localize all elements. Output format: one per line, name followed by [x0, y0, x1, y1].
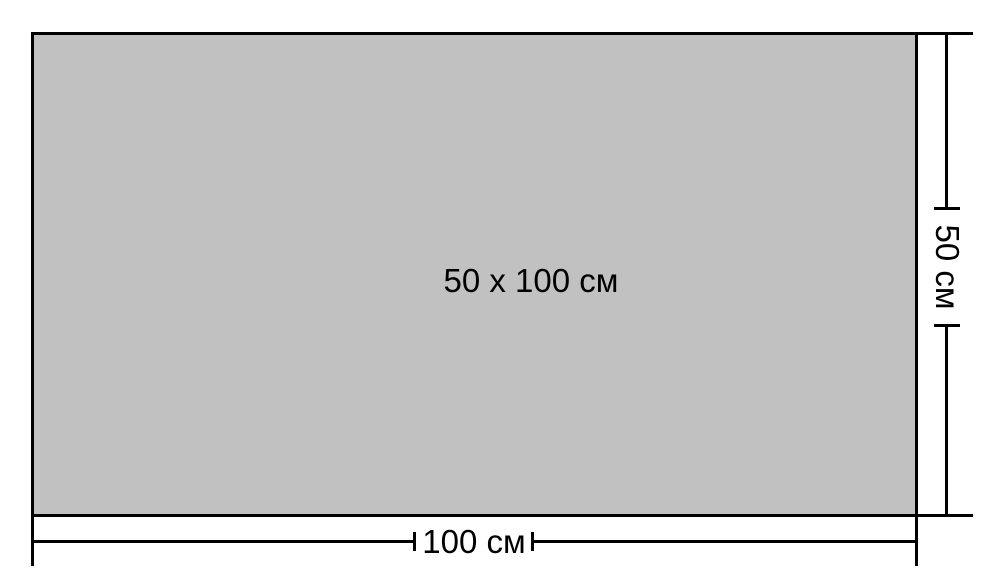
- area-size-label: 50 x 100 см: [444, 262, 619, 300]
- width-dimension-line-left: [31, 540, 414, 543]
- width-dimension-line-right: [534, 540, 918, 543]
- height-dimension-line-bottom: [945, 327, 948, 517]
- measured-rectangle: 50 x 100 см: [31, 32, 918, 517]
- width-dimension-tick-left: [413, 532, 416, 551]
- height-dimension-label: 50 см: [928, 224, 966, 309]
- width-dimension-label: 100 см: [422, 523, 525, 561]
- height-dimension-line-top: [945, 32, 948, 209]
- height-dimension-tick-top: [934, 207, 960, 210]
- dimension-diagram: 50 x 100 см 100 см 50 см: [0, 0, 1000, 582]
